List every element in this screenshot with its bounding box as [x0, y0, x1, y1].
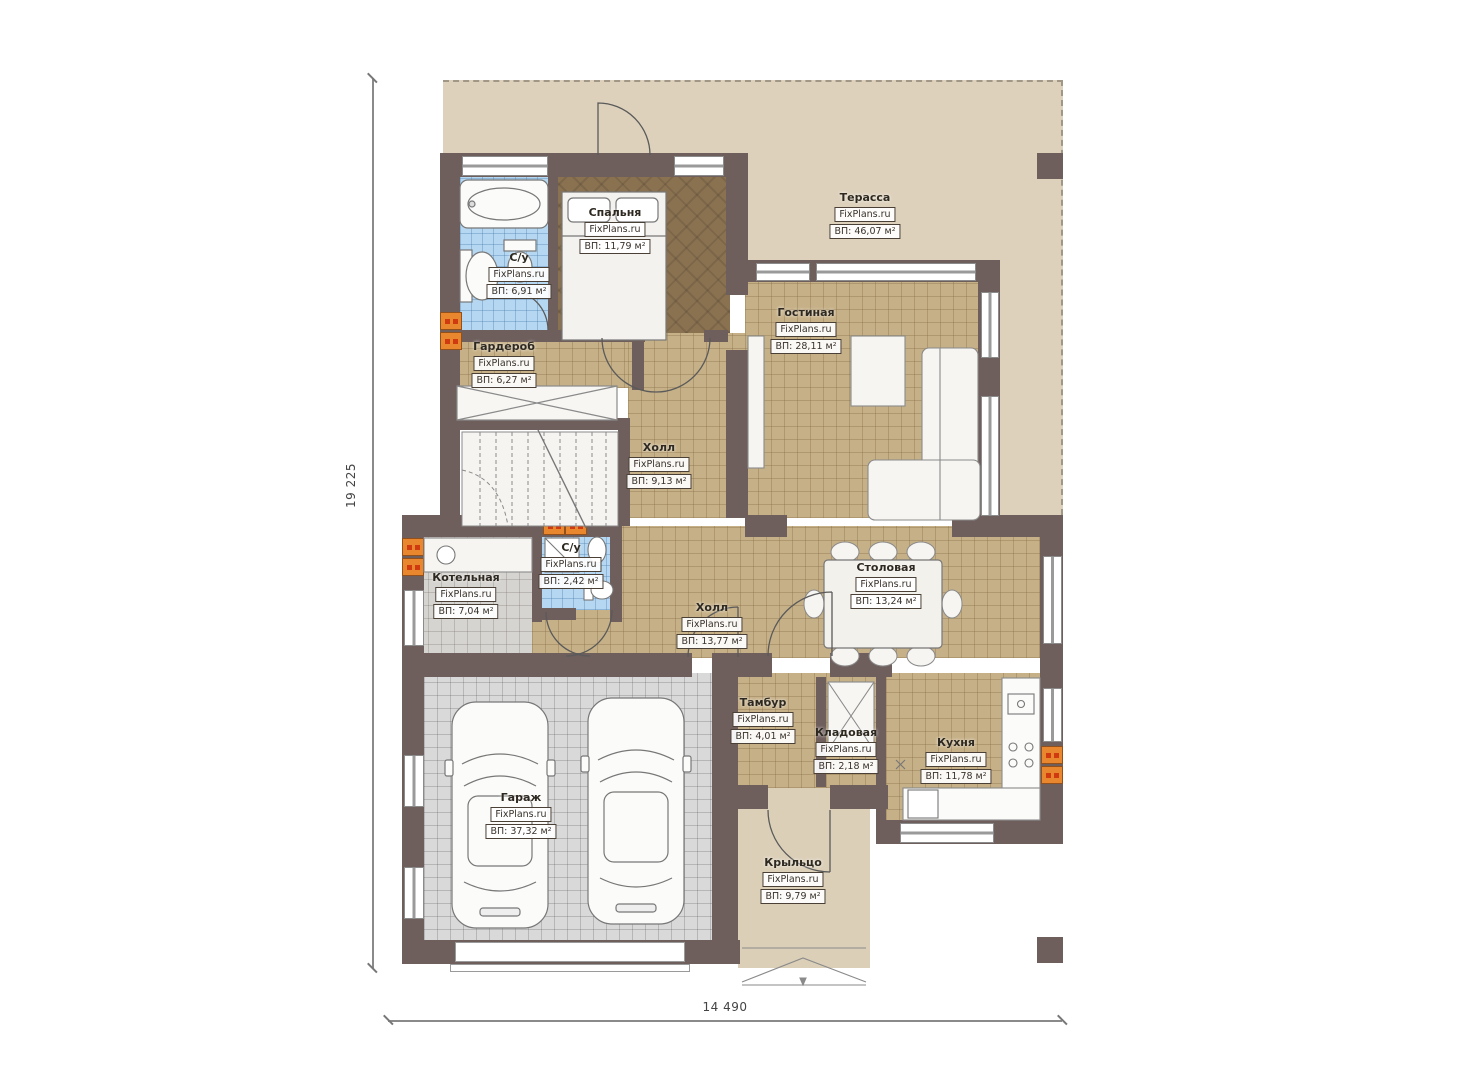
- wall: [745, 515, 787, 537]
- window: [404, 867, 424, 919]
- wall: [440, 418, 618, 430]
- room-label-hall1: Холл FixPlans.ru ВП: 9,13 м²: [626, 441, 691, 489]
- wall: [726, 153, 748, 295]
- room-name: Холл: [696, 601, 728, 614]
- room-label-living: Гостиная FixPlans.ru ВП: 28,11 м²: [770, 306, 841, 354]
- room-label-boiler: Котельная FixPlans.ru ВП: 7,04 м²: [432, 571, 499, 619]
- room-name: Столовая: [856, 561, 915, 574]
- watermark: FixPlans.ru: [584, 222, 645, 237]
- wall: [558, 330, 602, 342]
- room-area: ВП: 2,42 м²: [538, 574, 603, 589]
- room-area: ВП: 13,24 м²: [850, 594, 921, 609]
- room-name: Гардероб: [473, 340, 535, 353]
- floor-plan: Терасса FixPlans.ru ВП: 46,07 м² Спальня…: [0, 0, 1474, 1080]
- garage-door: [455, 942, 685, 962]
- window: [1043, 556, 1062, 644]
- watermark: FixPlans.ru: [732, 712, 793, 727]
- watermark: FixPlans.ru: [834, 207, 895, 222]
- dimension-line-left: [372, 78, 374, 968]
- dimension-label-left: 19 225: [344, 463, 358, 508]
- window: [900, 823, 994, 843]
- watermark: FixPlans.ru: [762, 872, 823, 887]
- window: [674, 156, 724, 176]
- watermark: FixPlans.ru: [855, 577, 916, 592]
- wall: [736, 785, 768, 809]
- dimension-line-bottom: [388, 1020, 1062, 1022]
- room-label-vestibule: Тамбур FixPlans.ru ВП: 4,01 м²: [730, 696, 795, 744]
- watermark: FixPlans.ru: [473, 356, 534, 371]
- dimension-label-bottom: 14 490: [703, 1000, 748, 1014]
- room-name: Кладовая: [815, 726, 877, 739]
- vent-icon: [543, 517, 565, 535]
- vent-icon: [440, 332, 462, 350]
- watermark: FixPlans.ru: [681, 617, 742, 632]
- vent-icon: [565, 517, 587, 535]
- window: [756, 263, 810, 281]
- window: [1043, 688, 1062, 742]
- room-area: ВП: 9,79 м²: [760, 889, 825, 904]
- wall: [736, 653, 772, 677]
- watermark: FixPlans.ru: [775, 322, 836, 337]
- watermark: FixPlans.ru: [488, 267, 549, 282]
- room-name: Котельная: [432, 571, 499, 584]
- room-label-storage: Кладовая FixPlans.ru ВП: 2,18 м²: [813, 726, 878, 774]
- room-label-hall2: Холл FixPlans.ru ВП: 13,77 м²: [676, 601, 747, 649]
- wall-pillar: [1037, 937, 1063, 963]
- vent-icon: [1041, 766, 1063, 784]
- room-label-bedroom: Спальня FixPlans.ru ВП: 11,79 м²: [579, 206, 650, 254]
- room-area: ВП: 7,04 м²: [433, 604, 498, 619]
- room-area: ВП: 6,91 м²: [486, 284, 551, 299]
- window: [816, 263, 976, 281]
- wall: [610, 526, 622, 622]
- vent-icon: [402, 538, 424, 556]
- room-area: ВП: 9,13 м²: [626, 474, 691, 489]
- room-label-wardrobe: Гардероб FixPlans.ru ВП: 6,27 м²: [471, 340, 536, 388]
- wall: [726, 350, 748, 518]
- room-label-bathroom2: С/у FixPlans.ru ВП: 2,42 м²: [538, 541, 603, 589]
- room-label-garage: Гараж FixPlans.ru ВП: 37,32 м²: [485, 791, 556, 839]
- window: [462, 156, 548, 176]
- room-name: Терасса: [840, 191, 891, 204]
- window: [981, 396, 999, 516]
- watermark: FixPlans.ru: [815, 742, 876, 757]
- room-area: ВП: 6,27 м²: [471, 373, 536, 388]
- room-label-bathroom1: С/у FixPlans.ru ВП: 6,91 м²: [486, 251, 551, 299]
- watermark: FixPlans.ru: [490, 807, 551, 822]
- room-label-terrace: Терасса FixPlans.ru ВП: 46,07 м²: [829, 191, 900, 239]
- room-label-kitchen: Кухня FixPlans.ru ВП: 11,78 м²: [920, 736, 991, 784]
- wall: [532, 608, 576, 620]
- garage-floor: [424, 673, 714, 943]
- room-name: С/у: [561, 541, 580, 554]
- room-area: ВП: 2,18 м²: [813, 759, 878, 774]
- garage-door-track: [450, 964, 690, 972]
- vent-icon: [402, 558, 424, 576]
- room-name: С/у: [509, 251, 528, 264]
- room-name: Тамбур: [740, 696, 787, 709]
- window: [404, 590, 424, 646]
- room-label-dining: Столовая FixPlans.ru ВП: 13,24 м²: [850, 561, 921, 609]
- room-name: Спальня: [589, 206, 642, 219]
- watermark: FixPlans.ru: [628, 457, 689, 472]
- room-area: ВП: 11,78 м²: [920, 769, 991, 784]
- vent-icon: [1041, 746, 1063, 764]
- room-area: ВП: 37,32 м²: [485, 824, 556, 839]
- wall-pillar: [1037, 153, 1063, 179]
- window: [404, 755, 424, 807]
- room-name: Кухня: [937, 736, 975, 749]
- room-area: ВП: 4,01 м²: [730, 729, 795, 744]
- vent-icon: [440, 312, 462, 330]
- wall: [830, 653, 892, 677]
- room-area: ВП: 28,11 м²: [770, 339, 841, 354]
- wall: [632, 342, 644, 390]
- room-name: Крыльцо: [764, 856, 822, 869]
- wall: [830, 785, 888, 809]
- room-label-porch: Крыльцо FixPlans.ru ВП: 9,79 м²: [760, 856, 825, 904]
- room-name: Холл: [643, 441, 675, 454]
- room-area: ВП: 13,77 м²: [676, 634, 747, 649]
- watermark: FixPlans.ru: [540, 557, 601, 572]
- wall: [704, 330, 728, 342]
- wall: [402, 653, 692, 677]
- watermark: FixPlans.ru: [925, 752, 986, 767]
- room-area: ВП: 11,79 м²: [579, 239, 650, 254]
- room-name: Гараж: [501, 791, 542, 804]
- room-name: Гостиная: [777, 306, 834, 319]
- room-area: ВП: 46,07 м²: [829, 224, 900, 239]
- window: [981, 292, 999, 358]
- watermark: FixPlans.ru: [435, 587, 496, 602]
